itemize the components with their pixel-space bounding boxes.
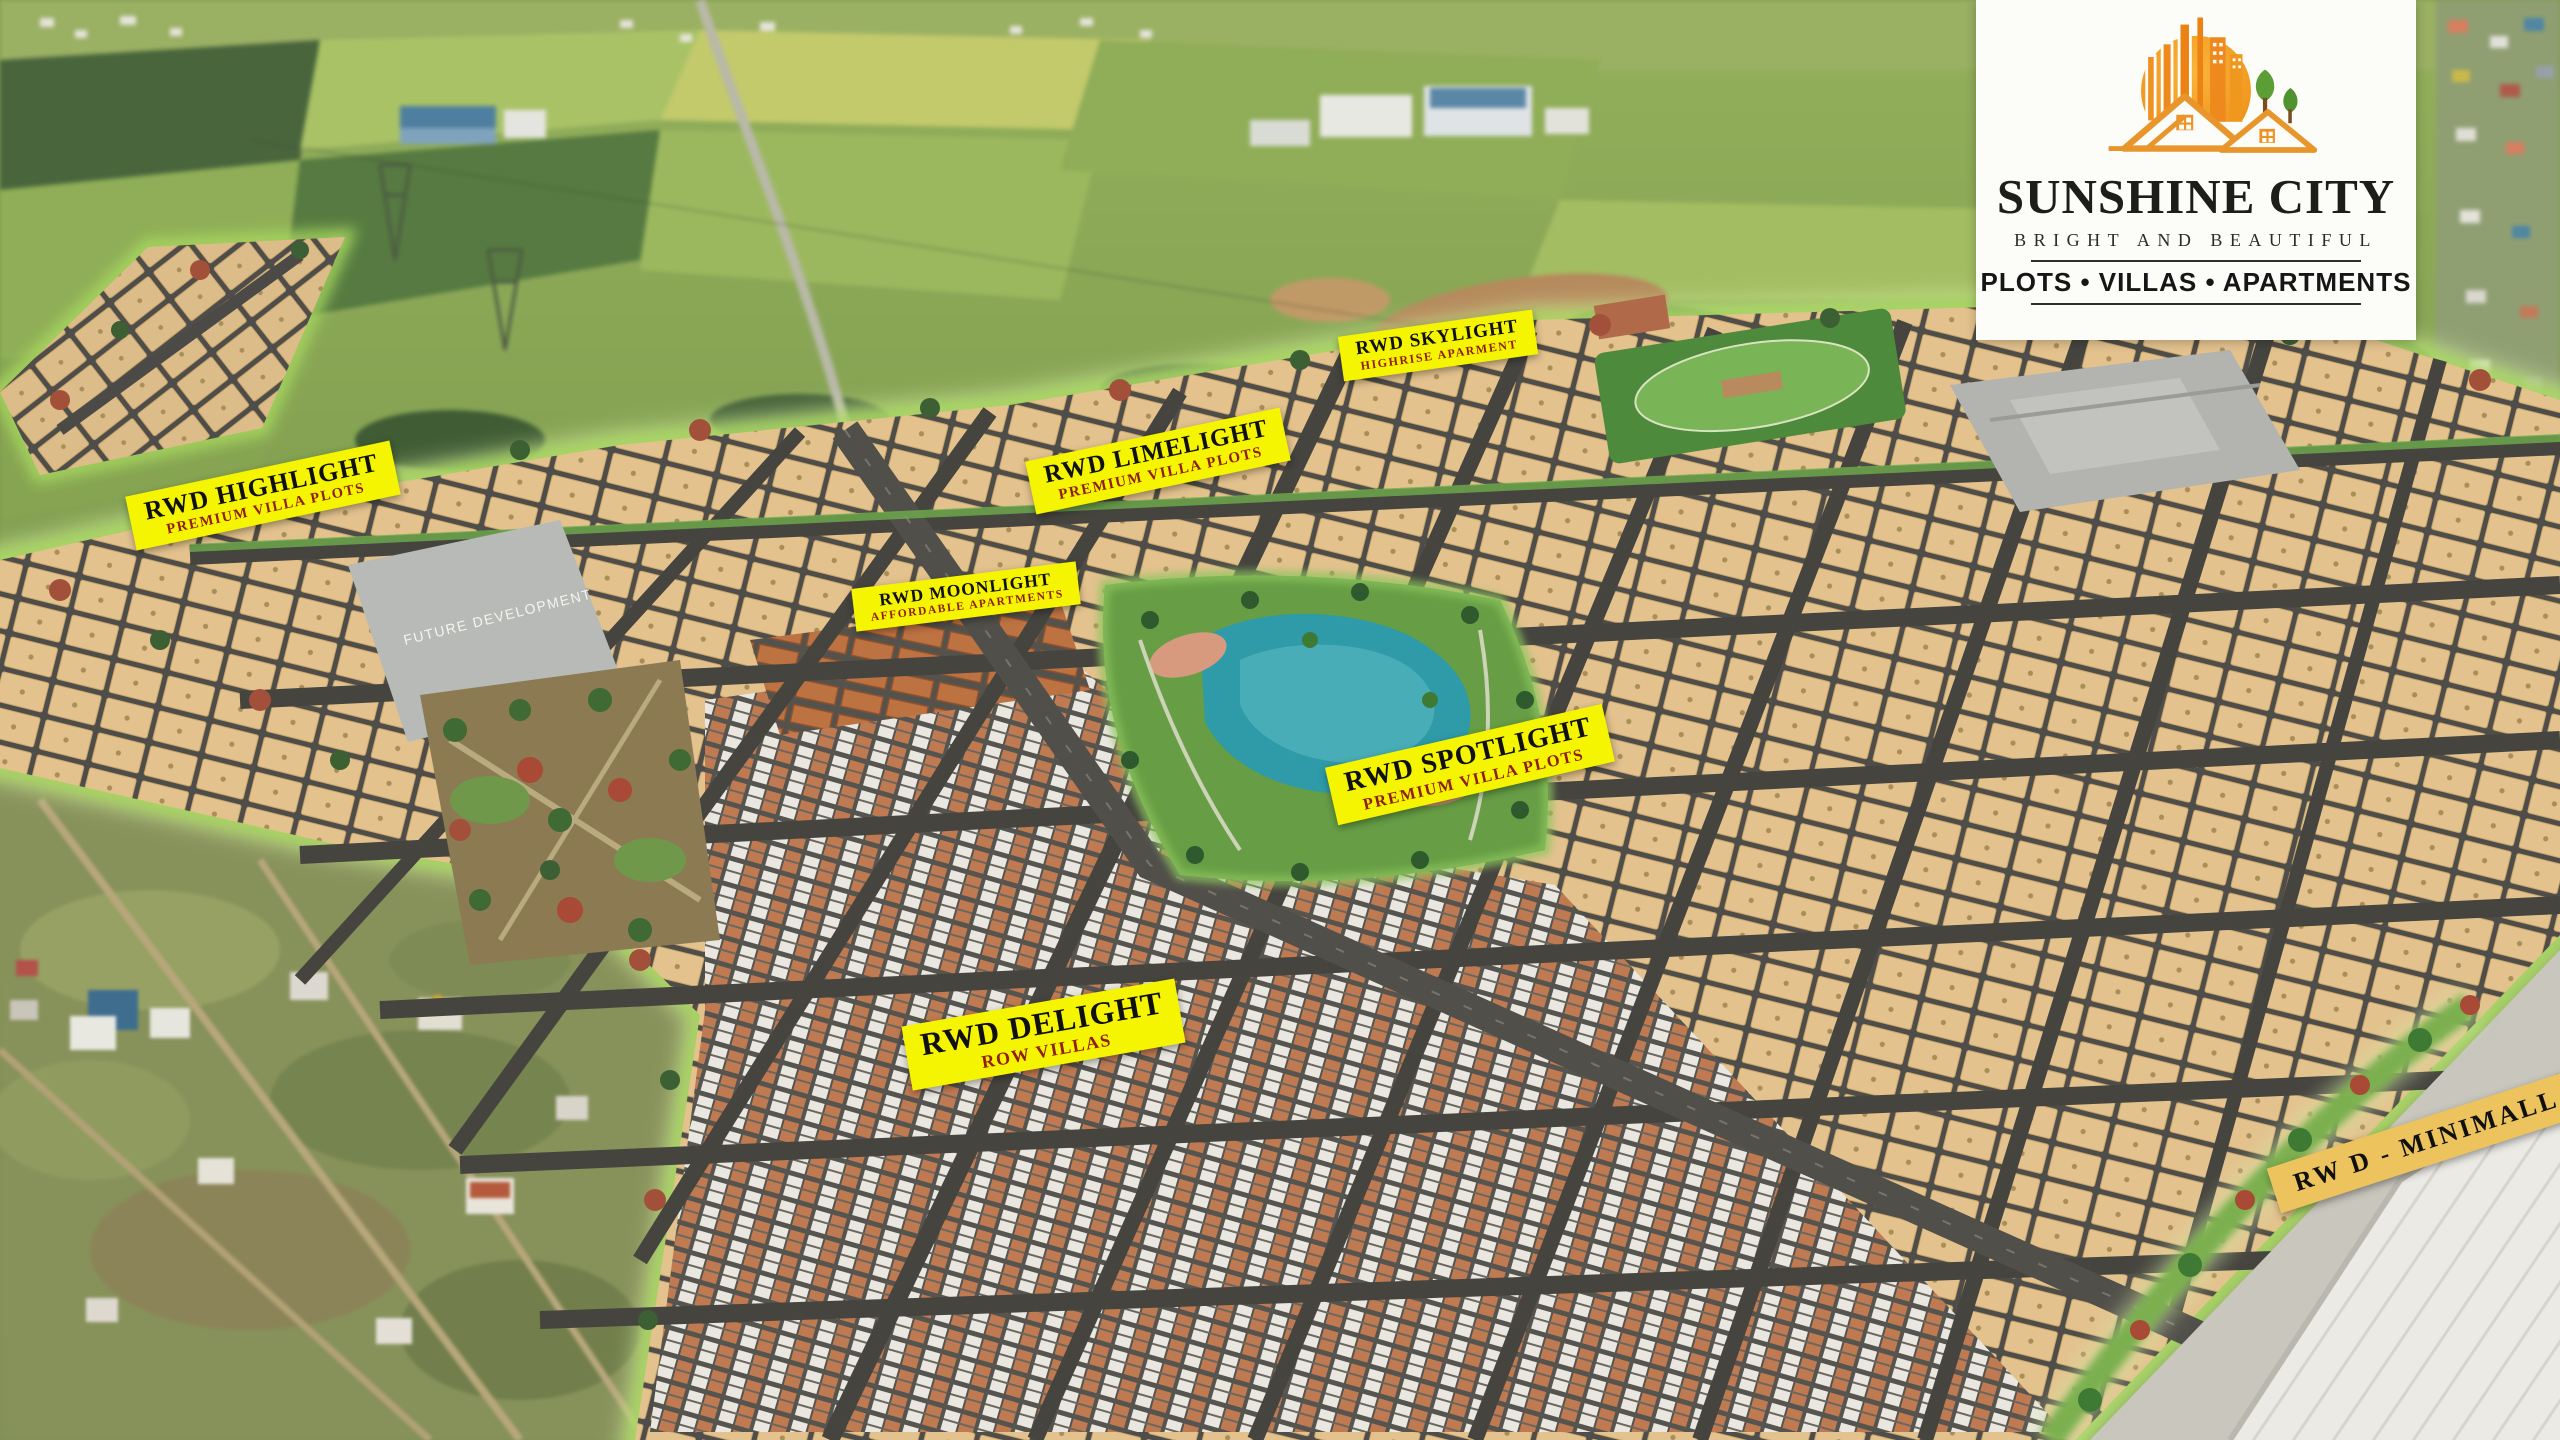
aerial-masterplan-screenshot: FUTURE DEVELOPMENT (0, 0, 2560, 1440)
logo-categories: PLOTS • VILLAS • APARTMENTS (1981, 267, 2412, 298)
sunshine-city-logo-icon (2041, 2, 2351, 174)
logo-divider (2031, 303, 2361, 305)
community-park (420, 660, 720, 965)
logo-card: SUNSHINE CITY BRIGHT AND BEAUTIFUL PLOTS… (1976, 0, 2416, 340)
logo-divider (2031, 260, 2361, 262)
logo-tagline: BRIGHT AND BEAUTIFUL (2014, 230, 2378, 251)
logo-title: SUNSHINE CITY (1997, 168, 2395, 225)
central-park (1103, 575, 1548, 881)
